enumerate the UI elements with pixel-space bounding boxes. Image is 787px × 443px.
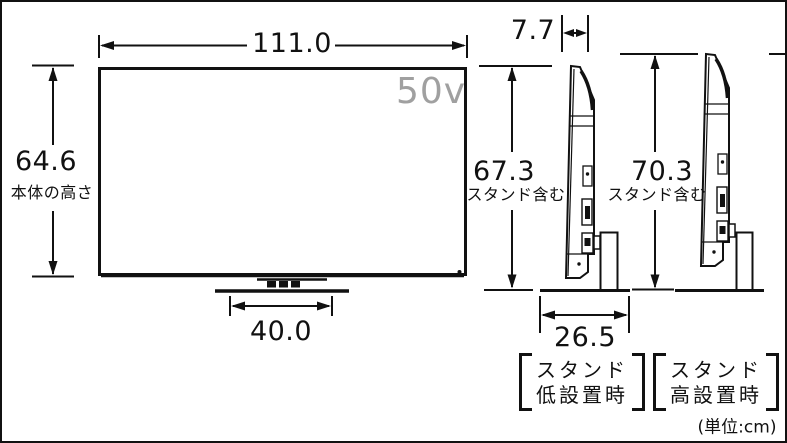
- bracket-low-left: [521, 355, 533, 410]
- body-height-caption: 本体の高さ: [11, 184, 94, 202]
- width-dimension-value: 111.0: [252, 29, 332, 59]
- stand-low-config-label: スタンド 低設置時: [536, 358, 628, 408]
- screen-size-label: 50v: [396, 72, 466, 112]
- stand-column-low: [601, 233, 618, 291]
- bracket-high-left: [655, 355, 667, 410]
- stand-bracket: [594, 236, 600, 249]
- unit-note: (単位:cm): [698, 419, 777, 438]
- dim-stand-width: [230, 296, 332, 316]
- pedestal-block: [291, 281, 300, 288]
- side-panel-high: [701, 54, 735, 266]
- dim-depth: [562, 15, 588, 52]
- depth-dimension-value: 7.7: [511, 16, 555, 46]
- pedestal-block: [279, 281, 288, 288]
- bracket-high-right: [766, 355, 778, 410]
- total-height-high-caption: スタンド含む: [607, 186, 706, 204]
- stand-column-high: [737, 233, 753, 291]
- stand-low-config-line1: スタンド: [536, 358, 628, 383]
- stand-high-config-line2: 高設置時: [670, 383, 762, 408]
- stand-width-value: 40.0: [250, 317, 312, 347]
- stand-bracket: [729, 224, 735, 237]
- power-led-dot: [458, 270, 462, 274]
- stand-high-config-label: スタンド 高設置時: [670, 358, 762, 408]
- stand-high-config-line1: スタンド: [670, 358, 762, 383]
- pedestal-block: [267, 281, 276, 288]
- stand-low-config-line2: 低設置時: [536, 383, 628, 408]
- side-panel-low: [566, 66, 600, 278]
- bracket-low-right: [632, 355, 644, 410]
- body-height-value: 64.6: [15, 147, 77, 177]
- total-height-high-value: 70.3: [631, 157, 693, 187]
- total-height-low-value: 67.3: [473, 157, 535, 187]
- stand-depth-value: 26.5: [554, 323, 616, 353]
- tv-dimension-diagram: 111.0 64.6 本体の高さ 50v 40.0 7.7 67.3 スタンド含…: [0, 0, 787, 443]
- total-height-low-caption: スタンド含む: [466, 186, 565, 204]
- side-view-low: [540, 66, 630, 291]
